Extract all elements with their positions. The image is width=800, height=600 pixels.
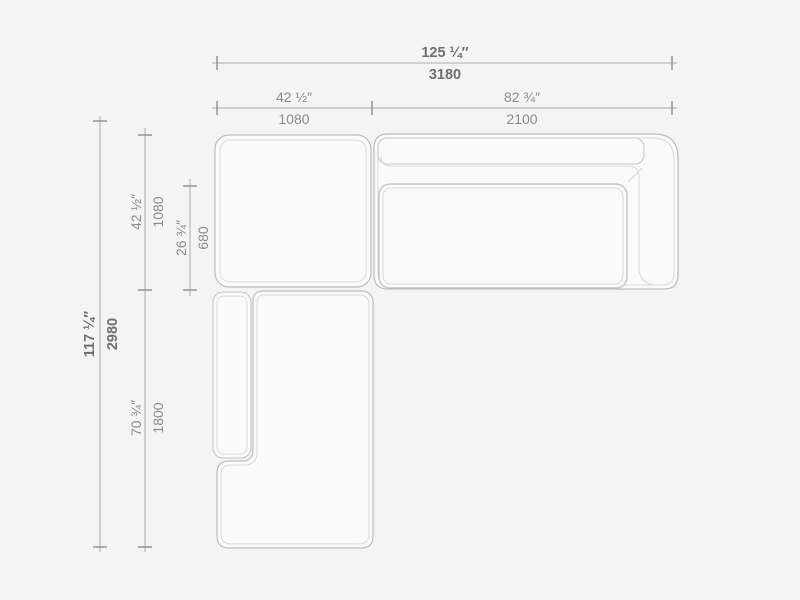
dim-overall-width-mm: 3180 xyxy=(429,67,461,83)
technical-drawing-canvas: 125 ¼″ 3180 42 ½″ 1080 82 ¾″ 2100 117 ¼″… xyxy=(0,0,800,600)
dim-left-section-width-inches: 42 ½″ xyxy=(276,89,312,105)
seat-cushion-shape xyxy=(379,184,627,288)
dim-chaise-length-inches: 70 ¾″ xyxy=(128,400,144,436)
dim-right-section-width-mm: 2100 xyxy=(506,111,537,127)
dim-seat-depth: 26 ¾″ 680 xyxy=(173,179,211,296)
dim-overall-depth-inches: 117 ¼″ xyxy=(82,311,98,358)
dim-section-widths: 42 ½″ 1080 82 ¾″ 2100 xyxy=(212,89,677,127)
dim-overall-width-inches: 125 ¼″ xyxy=(421,45,468,61)
dim-top-section-depth: 42 ½″ 1080 70 ¾″ 1800 xyxy=(128,128,166,552)
dim-overall-depth: 117 ¼″ 2980 xyxy=(82,116,121,552)
dim-left-section-width-mm: 1080 xyxy=(278,111,309,127)
dim-seat-depth-mm: 680 xyxy=(195,226,211,250)
corner-module-outline xyxy=(215,135,371,287)
dim-seat-depth-inches: 26 ¾″ xyxy=(173,220,189,256)
sofa-plan-drawing: 125 ¼″ 3180 42 ½″ 1080 82 ¾″ 2100 117 ¼″… xyxy=(0,0,800,600)
chaise-module-shape xyxy=(213,291,373,548)
corner-module-shape xyxy=(215,135,371,287)
dim-overall-width: 125 ¼″ 3180 xyxy=(212,45,677,83)
dim-chaise-length-mm: 1800 xyxy=(150,402,166,433)
sofa-module-shape xyxy=(374,134,678,289)
dim-top-section-depth-inches: 42 ½″ xyxy=(128,194,144,230)
backrest-cushion-shape xyxy=(378,138,644,164)
dim-overall-depth-mm: 2980 xyxy=(105,318,121,350)
dim-right-section-width-inches: 82 ¾″ xyxy=(504,89,540,105)
dim-top-section-depth-mm: 1080 xyxy=(150,196,166,227)
chaise-armrest-cushion-shape xyxy=(213,292,251,458)
